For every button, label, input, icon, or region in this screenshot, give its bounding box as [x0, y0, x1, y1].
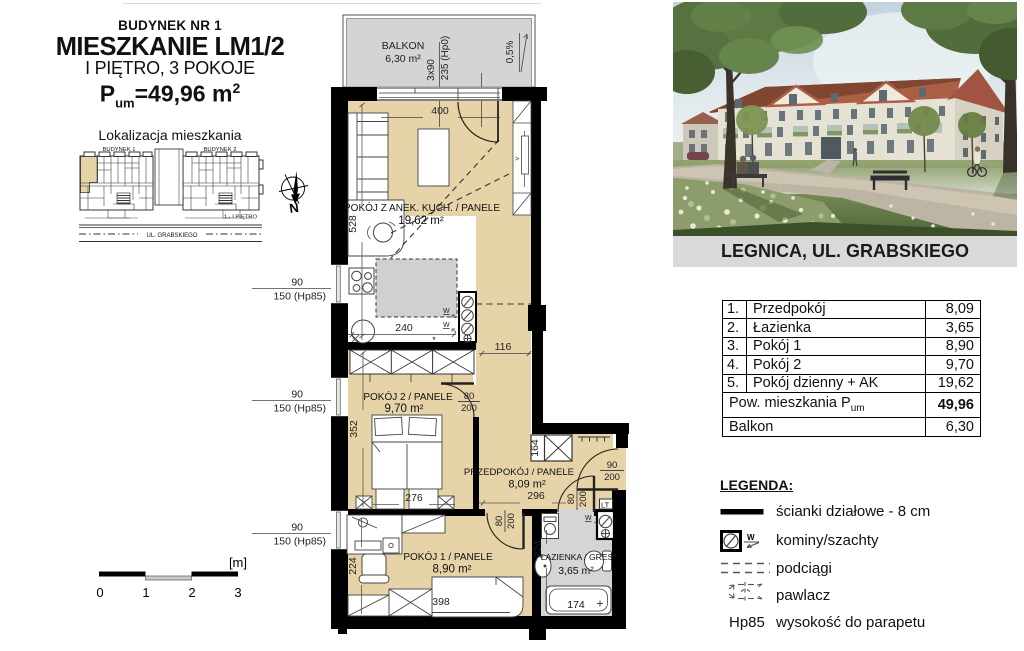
- svg-text:90: 90: [291, 277, 303, 289]
- svg-text:PRZEDPOKÓJ / PANELE: PRZEDPOKÓJ / PANELE: [464, 467, 574, 478]
- svg-text:ŁAZIENKA / GRES: ŁAZIENKA / GRES: [541, 552, 614, 562]
- svg-text:LT: LT: [601, 501, 610, 510]
- svg-text:8,90 m²: 8,90 m²: [433, 564, 472, 576]
- svg-text:352: 352: [348, 420, 360, 438]
- svg-text:150 (Hp85): 150 (Hp85): [273, 403, 326, 415]
- svg-text:398: 398: [432, 596, 450, 608]
- svg-text:[m]: [m]: [229, 555, 247, 570]
- svg-text:235 (Hp0): 235 (Hp0): [440, 36, 451, 80]
- svg-text:W: W: [585, 515, 592, 522]
- svg-text:W: W: [747, 533, 755, 542]
- svg-text:1 - I PIĘTRO: 1 - I PIĘTRO: [224, 215, 258, 221]
- svg-text:150 (Hp85): 150 (Hp85): [273, 291, 326, 303]
- svg-text:200: 200: [506, 513, 517, 529]
- svg-text:0,5%: 0,5%: [505, 40, 516, 63]
- svg-text:200: 200: [461, 403, 477, 414]
- svg-text:1: 1: [142, 585, 149, 600]
- svg-text:150 (Hp85): 150 (Hp85): [273, 536, 326, 548]
- svg-text:W: W: [443, 308, 450, 315]
- svg-text:164: 164: [529, 439, 541, 457]
- svg-text:400: 400: [431, 105, 449, 117]
- svg-text:90: 90: [291, 522, 303, 534]
- svg-text:BALKON: BALKON: [382, 40, 425, 52]
- svg-text:8,09 m²: 8,09 m²: [508, 479, 546, 491]
- svg-text:80: 80: [464, 391, 475, 402]
- svg-text:200: 200: [578, 491, 589, 507]
- svg-text:116: 116: [495, 341, 512, 353]
- svg-text:240: 240: [395, 322, 413, 334]
- svg-text:9,70 m²: 9,70 m²: [385, 403, 424, 415]
- svg-text:80: 80: [566, 494, 577, 505]
- svg-text:0: 0: [96, 585, 103, 600]
- svg-text:2: 2: [188, 585, 195, 600]
- svg-text:POKÓJ Z ANEK. KUCH. / PANELE: POKÓJ Z ANEK. KUCH. / PANELE: [344, 201, 500, 214]
- svg-text:90: 90: [607, 460, 618, 471]
- svg-text:19,62 m²: 19,62 m²: [398, 215, 444, 227]
- svg-text:POKÓJ 2 / PANELE: POKÓJ 2 / PANELE: [363, 390, 453, 403]
- svg-text:3,65 m²: 3,65 m²: [558, 565, 594, 577]
- svg-text:224: 224: [347, 557, 359, 575]
- svg-text:*: *: [432, 335, 436, 345]
- svg-text:6,30 m²: 6,30 m²: [385, 53, 421, 65]
- svg-text:W: W: [443, 322, 450, 329]
- svg-text:UL. GRABSKIEGO: UL. GRABSKIEGO: [146, 233, 197, 239]
- svg-text:200: 200: [604, 472, 620, 483]
- svg-text:3x90: 3x90: [426, 59, 437, 81]
- svg-text:224: 224: [532, 540, 544, 558]
- svg-text:80: 80: [494, 516, 505, 527]
- svg-text:>: >: [515, 154, 520, 163]
- svg-text:3: 3: [234, 585, 241, 600]
- svg-text:POKÓJ 1 / PANELE: POKÓJ 1 / PANELE: [403, 550, 493, 563]
- svg-text:296: 296: [527, 490, 545, 502]
- svg-text:90: 90: [291, 389, 303, 401]
- svg-text:276: 276: [405, 492, 423, 504]
- svg-text:528: 528: [347, 215, 359, 233]
- svg-text:174: 174: [567, 599, 585, 611]
